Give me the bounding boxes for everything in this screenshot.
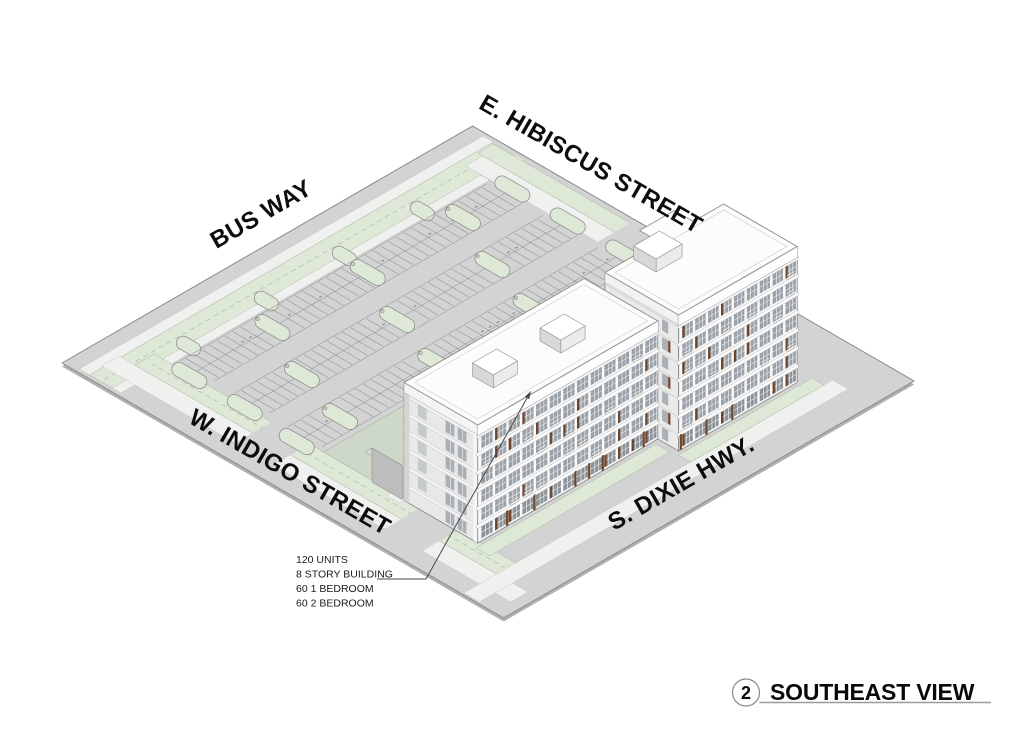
site-rendering-page: BUS WAY E. HIBISCUS STREET W. INDIGO STR… — [0, 0, 1024, 737]
annotation-line-1bed: 60 1 BEDROOM — [296, 583, 374, 595]
view-title-block: 2 SOUTHEAST VIEW — [733, 679, 992, 706]
annotation-line-2bed: 60 2 BEDROOM — [296, 598, 374, 610]
view-title: SOUTHEAST VIEW — [770, 679, 975, 705]
view-number: 2 — [741, 683, 751, 703]
annotation-line-stories: 8 STORY BUILDING — [296, 569, 393, 581]
annotation-block: 120 UNITS 8 STORY BUILDING 60 1 BEDROOM … — [296, 554, 393, 610]
annotation-line-units: 120 UNITS — [296, 554, 348, 566]
scene-svg: BUS WAY E. HIBISCUS STREET W. INDIGO STR… — [0, 0, 1024, 737]
